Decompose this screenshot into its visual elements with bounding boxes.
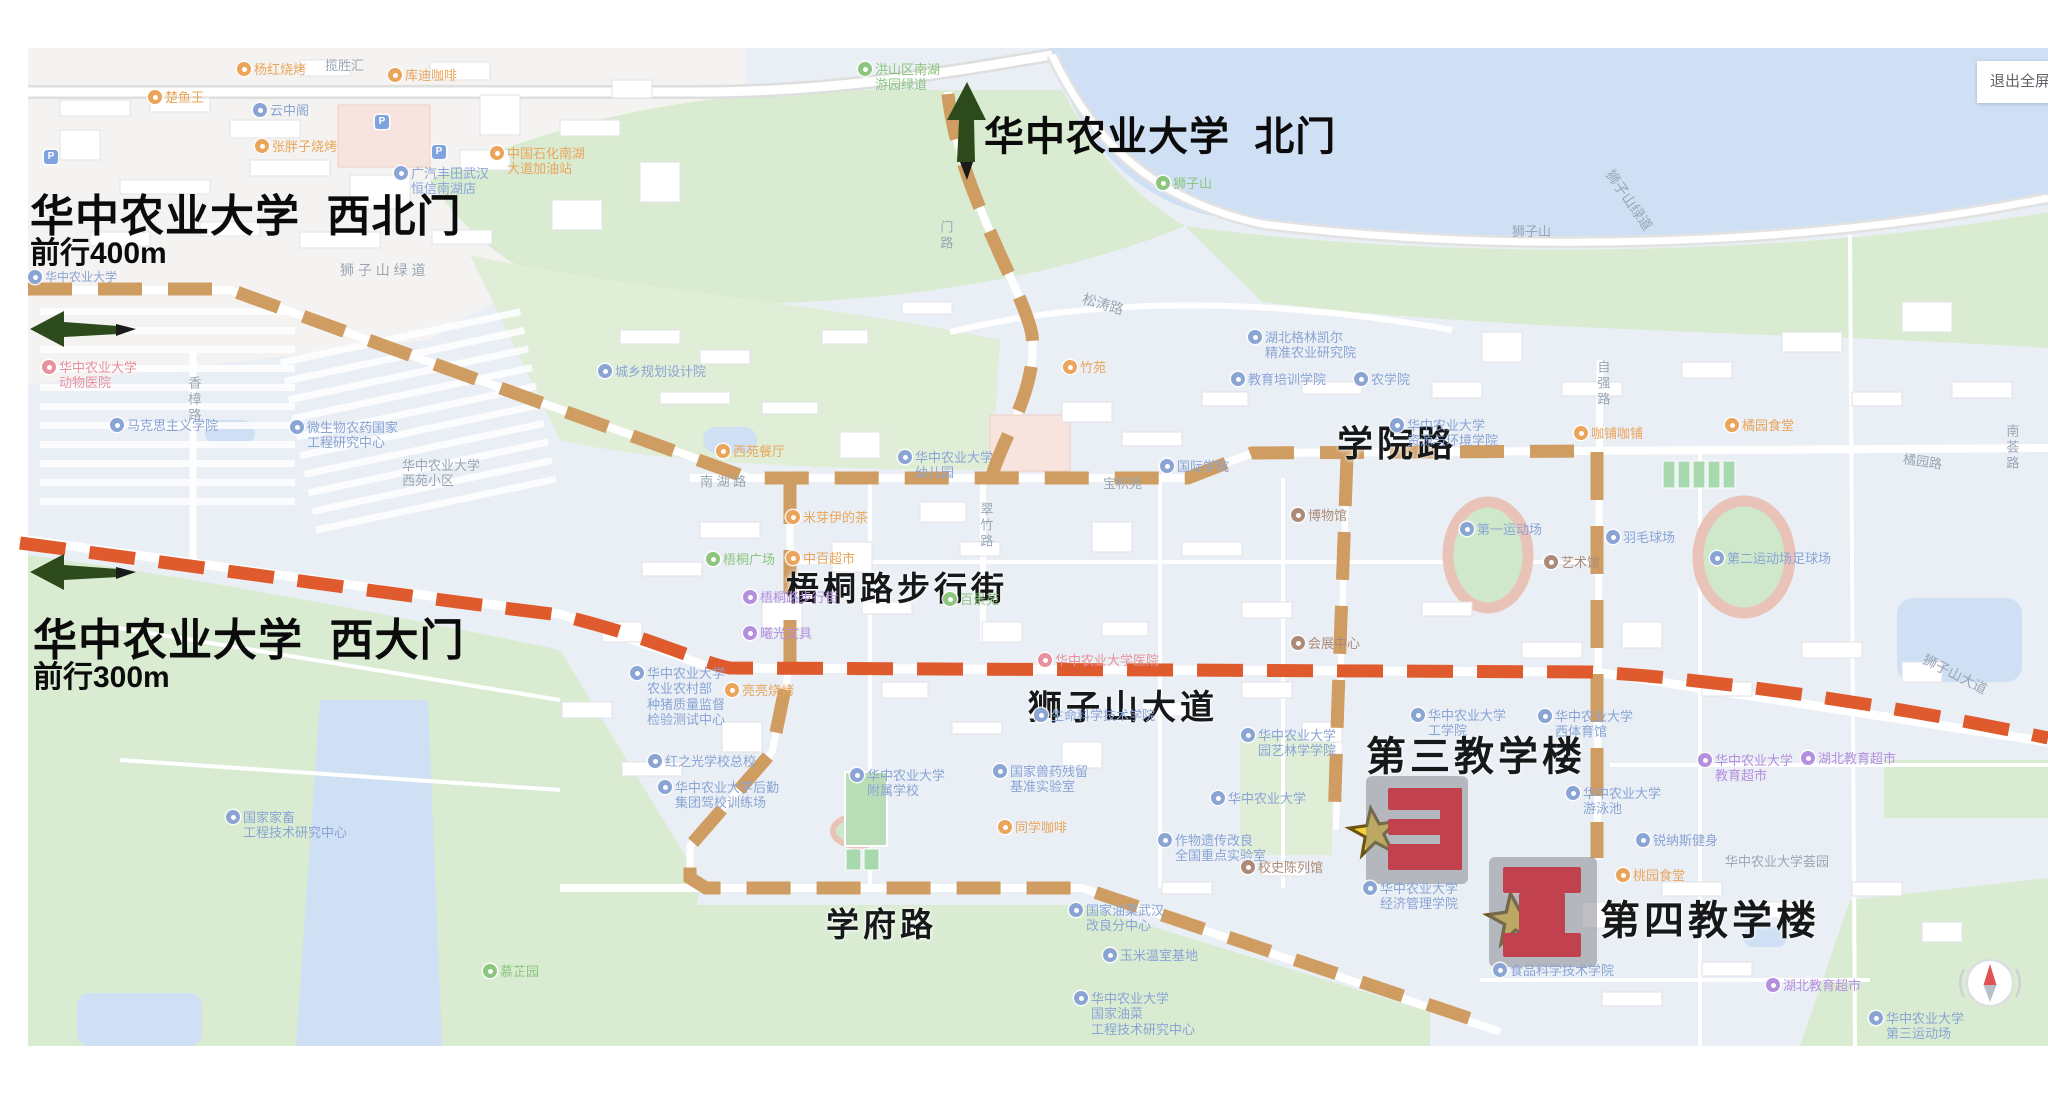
map-poi: 华中农业大学 第三运动场 (1869, 1011, 1964, 1042)
poi-icon (1460, 522, 1474, 536)
map-poi: 洪山区南湖 游园绿道 (858, 62, 940, 93)
poi-label: 生命科学技术学院 (1051, 708, 1155, 723)
map-poi: 华中农业大学 园艺林学学院 (1241, 728, 1336, 759)
map-poi: 第一运动场 (1460, 522, 1542, 537)
poi-icon (1069, 903, 1083, 917)
poi-label: 华中农业大学 游泳池 (1583, 786, 1661, 817)
poi-label: 城乡规划设计院 (615, 364, 706, 379)
poi-label: 华中农业大学医院 (1055, 653, 1159, 668)
poi-icon (1801, 751, 1815, 765)
map-poi: 中国石化南湖 大道加油站 (490, 146, 585, 177)
north-gate-title: 华中农业大学 北门 (984, 104, 1336, 162)
map-poi: 生命科学技术学院 (1034, 708, 1155, 723)
map-poi: 玉米温室基地 (1103, 948, 1198, 963)
poi-icon (253, 103, 267, 117)
poi-label: 羽毛球场 (1623, 530, 1675, 545)
parking-icon: P (44, 150, 61, 164)
poi-icon (1390, 418, 1404, 432)
map-poi: 国家油菜武汉 改良分中心 (1069, 903, 1164, 934)
poi-label: 亮亮烧烤 (742, 683, 794, 698)
poi-icon (706, 552, 720, 566)
poi-label: 梧桐路步行街 (760, 590, 838, 605)
poi-label: 狮 子 山 绿 道 (340, 262, 426, 279)
poi-label: 华中农业大学荟园 (1725, 854, 1829, 869)
poi-label: 广汽丰田武汉 恒信南湖店 (411, 166, 489, 197)
map-poi: 华中农业大学 国家油菜 工程技术研究中心 (1074, 991, 1195, 1037)
compass-control[interactable] (1956, 949, 2024, 1017)
poi-icon (1074, 991, 1088, 1005)
northwest-arrow-tail (116, 324, 136, 336)
poi-label: 华中农业大学 第三运动场 (1886, 1011, 1964, 1042)
poi-label: 湖北教育超市 (1818, 751, 1896, 766)
parking-glyph: P (375, 115, 389, 129)
poi-icon (1869, 1011, 1883, 1025)
map-poi: 红之光学校总校 (648, 754, 756, 769)
poi-label: 国际学院 (1177, 459, 1229, 474)
poi-label: 张胖子烧烤 (272, 139, 337, 154)
poi-icon (786, 510, 800, 524)
map-poi: 南荟路 (2004, 424, 2019, 472)
map-poi: 中百超市 (786, 551, 855, 566)
poi-icon (725, 683, 739, 697)
poi-icon (1158, 833, 1172, 847)
map-poi: 张胖子烧烤 (255, 139, 337, 154)
map-poi: 库迪咖啡 (388, 68, 457, 83)
poi-icon (1103, 948, 1117, 962)
poi-label: 宝积苑 (1103, 476, 1142, 491)
poi-label: 湖北教育超市 (1783, 978, 1861, 993)
poi-label: 库迪咖啡 (405, 68, 457, 83)
poi-icon (1034, 708, 1048, 722)
map-poi: 慕芷园 (483, 964, 539, 979)
poi-icon (1493, 963, 1507, 977)
poi-label: 楚鱼王 (165, 90, 204, 105)
poi-label: 米芽伊的茶 (803, 510, 868, 525)
poi-label: 红之光学校总校 (665, 754, 756, 769)
poi-icon (1698, 753, 1712, 767)
map-poi: 华中农业大学 游泳池 (1566, 786, 1661, 817)
parking-icon: P (375, 115, 392, 129)
map-poi: 华中农业大学 资源与环境学院 (1390, 418, 1498, 449)
map-poi: 微生物农药国家 工程研究中心 (290, 420, 398, 451)
poi-icon (1291, 508, 1305, 522)
poi-label: 狮子山 (1512, 224, 1551, 239)
map-poi: 云中阁 (253, 103, 309, 118)
map-poi: 教育培训学院 (1231, 372, 1326, 387)
poi-icon (290, 420, 304, 434)
poi-label: 玉米温室基地 (1120, 948, 1198, 963)
poi-label: 翠竹路 (978, 502, 993, 550)
poi-icon (28, 270, 42, 284)
poi-label: 华中农业大学 教育超市 (1715, 753, 1793, 784)
poi-icon (1574, 426, 1588, 440)
map-poi: 门路 (938, 220, 953, 252)
map-poi: 国际学院 (1160, 459, 1229, 474)
poi-icon (786, 551, 800, 565)
poi-label: 马克思主义学院 (127, 418, 218, 433)
poi-label: 食品科学技术学院 (1510, 963, 1614, 978)
poi-icon (1710, 551, 1724, 565)
exit-fullscreen-button[interactable]: 退出全屏 (1977, 61, 2048, 103)
poi-label: 校史陈列馆 (1258, 860, 1323, 875)
map-poi: 华中农业大学 (1211, 791, 1306, 806)
map-poi: 广汽丰田武汉 恒信南湖店 (394, 166, 489, 197)
map-poi: 桃园食堂 (1616, 868, 1685, 883)
poi-label: 洪山区南湖 游园绿道 (875, 62, 940, 93)
poi-label: 揽胜汇 (325, 58, 364, 73)
poi-icon (255, 139, 269, 153)
map-poi: 狮子山 (1512, 224, 1551, 239)
poi-icon (630, 666, 644, 680)
map-poi: 狮 子 山 绿 道 (340, 262, 426, 279)
map-poi: 楚鱼王 (148, 90, 204, 105)
west-arrow-tail (116, 567, 136, 579)
map-poi: 曦光文具 (743, 626, 812, 641)
poi-label: 博物馆 (1308, 508, 1347, 523)
map-poi: 南 湖 路 (700, 474, 746, 489)
poi-icon (743, 590, 757, 604)
poi-icon (658, 780, 672, 794)
poi-icon (394, 166, 408, 180)
map-poi: 国家兽药残留 基准实验室 (993, 764, 1088, 795)
poi-icon (1411, 708, 1425, 722)
poi-icon (850, 768, 864, 782)
poi-icon (1291, 636, 1305, 650)
map-poi: 翠竹路 (978, 502, 993, 550)
poi-label: 华中农业大学 西苑小区 (402, 458, 480, 489)
map-poi: 食品科学技术学院 (1493, 963, 1614, 978)
poi-icon (226, 810, 240, 824)
poi-label: 南 湖 路 (700, 474, 746, 489)
poi-label: 华中农业大学 西体育馆 (1555, 709, 1633, 740)
map-poi: 博物馆 (1291, 508, 1347, 523)
poi-label: 华中农业大学 幼儿园 (915, 450, 993, 481)
map-poi: 城乡规划设计院 (598, 364, 706, 379)
map-poi: 羽毛球场 (1606, 530, 1675, 545)
poi-label: 国家油菜武汉 改良分中心 (1086, 903, 1164, 934)
map-poi: 百景苑 (943, 592, 999, 607)
poi-label: 华中农业大学 园艺林学学院 (1258, 728, 1336, 759)
poi-label: 国家兽药残留 基准实验室 (1010, 764, 1088, 795)
poi-icon (716, 444, 730, 458)
map-poi: 华中农业大学荟园 (1725, 854, 1829, 869)
map-poi: 华中农业大学 动物医院 (42, 360, 137, 391)
poi-icon (1544, 555, 1558, 569)
poi-icon (110, 418, 124, 432)
poi-label: 微生物农药国家 工程研究中心 (307, 420, 398, 451)
hospital-icon (1038, 653, 1052, 667)
poi-icon (1636, 833, 1650, 847)
poi-icon (993, 764, 1007, 778)
poi-label: 华中农业大学 资源与环境学院 (1407, 418, 1498, 449)
west-gate-distance: 前行300m (33, 652, 170, 696)
poi-label: 自强路 (1595, 360, 1610, 408)
parking-glyph: P (432, 145, 446, 159)
poi-icon (743, 626, 757, 640)
map-poi: 华中农业大学 幼儿园 (898, 450, 993, 481)
poi-icon (1241, 728, 1255, 742)
map-poi: 杨红烧烤 (237, 62, 306, 77)
poi-icon (483, 964, 497, 978)
map-poi: 第二运动场足球场 (1710, 551, 1831, 566)
map-poi: 湖北教育超市 (1766, 978, 1861, 993)
poi-label: 中百超市 (803, 551, 855, 566)
poi-icon (1354, 372, 1368, 386)
map-poi: 梧桐路步行街 (743, 590, 838, 605)
poi-label: 艺术馆 (1561, 555, 1600, 570)
poi-label: 国家家畜 工程技术研究中心 (243, 810, 347, 841)
poi-icon (1725, 418, 1739, 432)
parking-icon: P (432, 145, 449, 159)
northwest-gate-arrow (30, 311, 118, 347)
map-poi: 华中农业大学 经济管理学院 (1363, 881, 1458, 912)
poi-icon (1616, 868, 1630, 882)
poi-icon (598, 364, 612, 378)
building3-shape (1388, 819, 1444, 835)
poi-icon (1766, 978, 1780, 992)
poi-label: 西苑餐厅 (733, 444, 785, 459)
map-poi: 会展中心 (1291, 636, 1360, 651)
poi-label: 华中农业大学 (45, 270, 117, 284)
poi-label: 门路 (938, 220, 953, 252)
map-poi: 狮子山 (1156, 176, 1212, 191)
map-poi: 华中农业大学 附属学校 (850, 768, 945, 799)
poi-label: 云中阁 (270, 103, 309, 118)
poi-label: 狮子山 (1173, 176, 1212, 191)
map-screenshot: 华中农业大学 西北门 前行400m 华中农业大学 西大门 前行300m 华中农业… (0, 0, 2048, 1110)
poi-icon (490, 146, 504, 160)
poi-icon (1538, 709, 1552, 723)
poi-icon (1063, 360, 1077, 374)
map-poi: 锐纳斯健身 (1636, 833, 1718, 848)
poi-icon (1231, 372, 1245, 386)
poi-icon (998, 820, 1012, 834)
poi-label: 华中农业大学 (1228, 791, 1306, 806)
poi-label: 咖铺咖铺 (1591, 426, 1643, 441)
map-poi: 宝积苑 (1103, 476, 1142, 491)
poi-label: 橘园食堂 (1742, 418, 1794, 433)
map-poi: 竹苑 (1063, 360, 1106, 375)
poi-label: 华中农业大学 工学院 (1428, 708, 1506, 739)
poi-icon (1156, 176, 1170, 190)
map-poi: 艺术馆 (1544, 555, 1600, 570)
map-poi: 华中农业大学 (28, 270, 117, 284)
poi-label: 第二运动场足球场 (1727, 551, 1831, 566)
poi-label: 百景苑 (960, 592, 999, 607)
parking-glyph: P (44, 150, 58, 164)
map-poi: 华中农业大学 西苑小区 (402, 458, 480, 489)
poi-label: 湖北格林凯尔 精准农业研究院 (1265, 330, 1356, 361)
map-poi: 华中农业大学 西体育馆 (1538, 709, 1633, 740)
poi-icon (898, 450, 912, 464)
map-poi: 自强路 (1595, 360, 1610, 408)
poi-icon (943, 592, 957, 606)
poi-label: 第一运动场 (1477, 522, 1542, 537)
northwest-gate-distance: 前行400m (30, 228, 167, 272)
poi-icon (237, 62, 251, 76)
map-poi: 校史陈列馆 (1241, 860, 1323, 875)
map-poi: 华中农业大学 工学院 (1411, 708, 1506, 739)
poi-label: 曦光文具 (760, 626, 812, 641)
map-poi: 华中农业大学医院 (1038, 653, 1159, 668)
map-poi: 湖北教育超市 (1801, 751, 1896, 766)
poi-icon (1241, 860, 1255, 874)
poi-icon (1160, 459, 1174, 473)
map-poi: 华中农业大学 教育超市 (1698, 753, 1793, 784)
poi-icon (1606, 530, 1620, 544)
poi-label: 中国石化南湖 大道加油站 (507, 146, 585, 177)
building4-label: 第四教学楼 (1600, 888, 1820, 946)
poi-label: 锐纳斯健身 (1653, 833, 1718, 848)
poi-label: 农学院 (1371, 372, 1410, 387)
poi-icon (1248, 330, 1262, 344)
poi-label: 竹苑 (1080, 360, 1106, 375)
map-poi: 咖铺咖铺 (1574, 426, 1643, 441)
hospital-icon (42, 360, 56, 374)
poi-icon (1211, 791, 1225, 805)
poi-label: 香樟路 (186, 376, 201, 424)
poi-icon (1363, 881, 1377, 895)
poi-label: 南荟路 (2004, 424, 2019, 472)
poi-label: 杨红烧烤 (254, 62, 306, 77)
poi-label: 慕芷园 (500, 964, 539, 979)
poi-icon (388, 68, 402, 82)
poi-label: 会展中心 (1308, 636, 1360, 651)
map-poi: 米芽伊的茶 (786, 510, 868, 525)
building4-shape (1503, 867, 1581, 893)
map-poi: 华中农业大学后勤 集团驾校训练场 (658, 780, 779, 811)
poi-label: 梧桐广场 (723, 552, 775, 567)
poi-label: 华中农业大学 国家油菜 工程技术研究中心 (1091, 991, 1195, 1037)
poi-label: 教育培训学院 (1248, 372, 1326, 387)
building4-shape (1503, 933, 1581, 957)
poi-label: 华中农业大学 农业农村部 种猪质量监督 检验测试中心 (647, 666, 725, 727)
poi-label: 华中农业大学 附属学校 (867, 768, 945, 799)
map-poi: 马克思主义学院 (110, 418, 218, 433)
map-poi: 华中农业大学 农业农村部 种猪质量监督 检验测试中心 (630, 666, 725, 727)
map-poi: 同学咖啡 (998, 820, 1067, 835)
map-poi: 揽胜汇 (325, 58, 364, 73)
poi-label: 同学咖啡 (1015, 820, 1067, 835)
poi-label: 桃园食堂 (1633, 868, 1685, 883)
poi-icon (648, 754, 662, 768)
poi-icon (858, 62, 872, 76)
building3-shape (1440, 788, 1462, 870)
map-poi: 橘园食堂 (1725, 418, 1794, 433)
poi-label: 华中农业大学 经济管理学院 (1380, 881, 1458, 912)
poi-icon (1566, 786, 1580, 800)
map-poi: 西苑餐厅 (716, 444, 785, 459)
poi-label: 华中农业大学 动物医院 (59, 360, 137, 391)
road-label-bold: 学府路 (826, 898, 937, 946)
map-poi: 湖北格林凯尔 精准农业研究院 (1248, 330, 1356, 361)
map-poi: 国家家畜 工程技术研究中心 (226, 810, 347, 841)
map-poi: 香樟路 (186, 376, 201, 424)
map-poi: 梧桐广场 (706, 552, 775, 567)
poi-icon (148, 90, 162, 104)
poi-label: 华中农业大学后勤 集团驾校训练场 (675, 780, 779, 811)
map-poi: 亮亮烧烤 (725, 683, 794, 698)
map-poi: 农学院 (1354, 372, 1410, 387)
